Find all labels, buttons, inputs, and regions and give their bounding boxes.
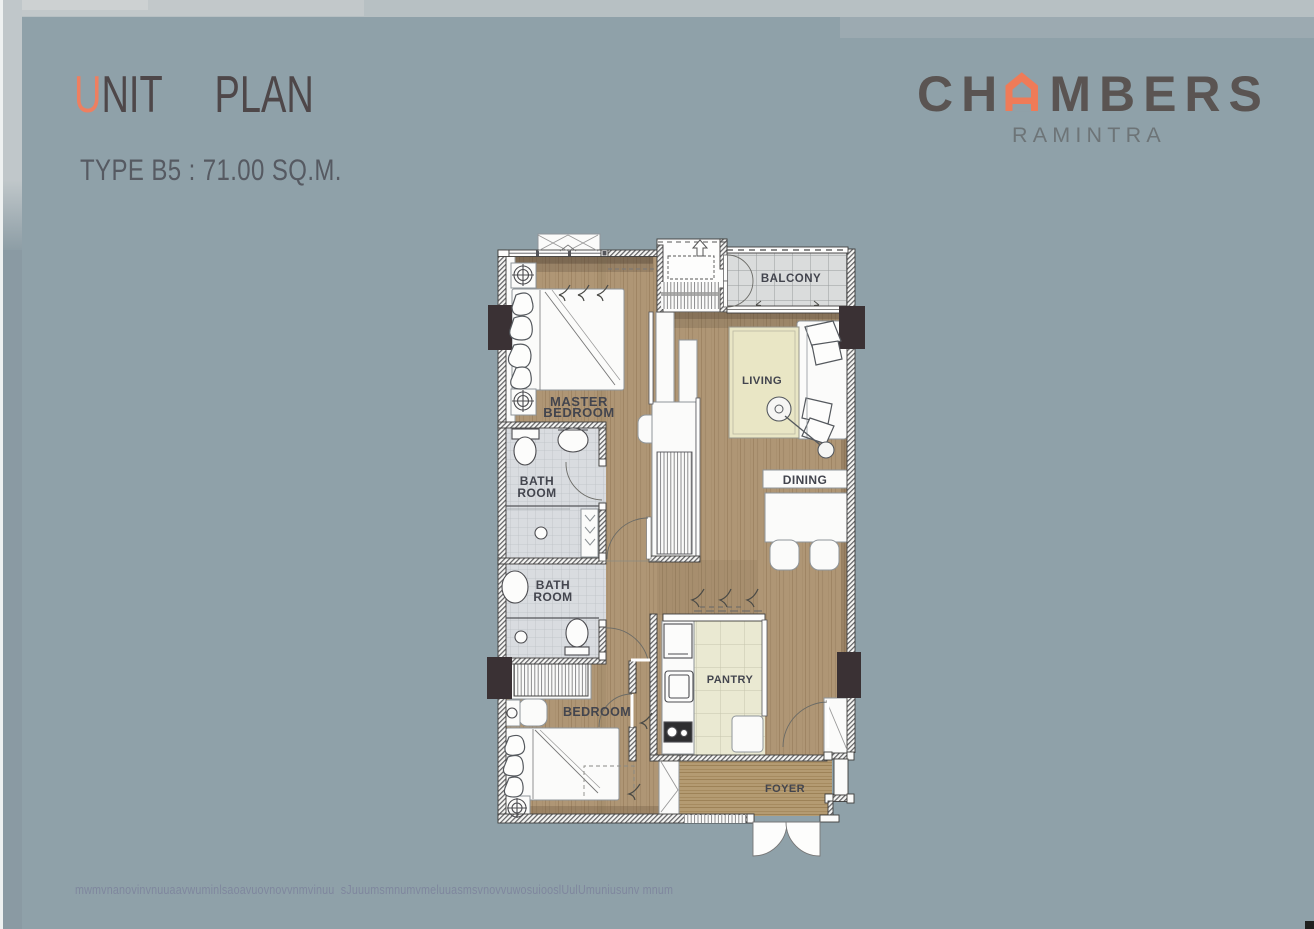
svg-text:LIVING: LIVING: [742, 375, 782, 387]
svg-text:BALCONY: BALCONY: [761, 273, 821, 285]
svg-text:BEDROOM: BEDROOM: [543, 405, 614, 420]
svg-text:ROOM: ROOM: [517, 486, 556, 500]
svg-text:BEDROOM: BEDROOM: [563, 705, 631, 719]
svg-text:DINING: DINING: [783, 473, 827, 487]
svg-text:FOYER: FOYER: [765, 783, 805, 795]
svg-text:PANTRY: PANTRY: [707, 674, 754, 686]
svg-text:ROOM: ROOM: [533, 590, 572, 604]
